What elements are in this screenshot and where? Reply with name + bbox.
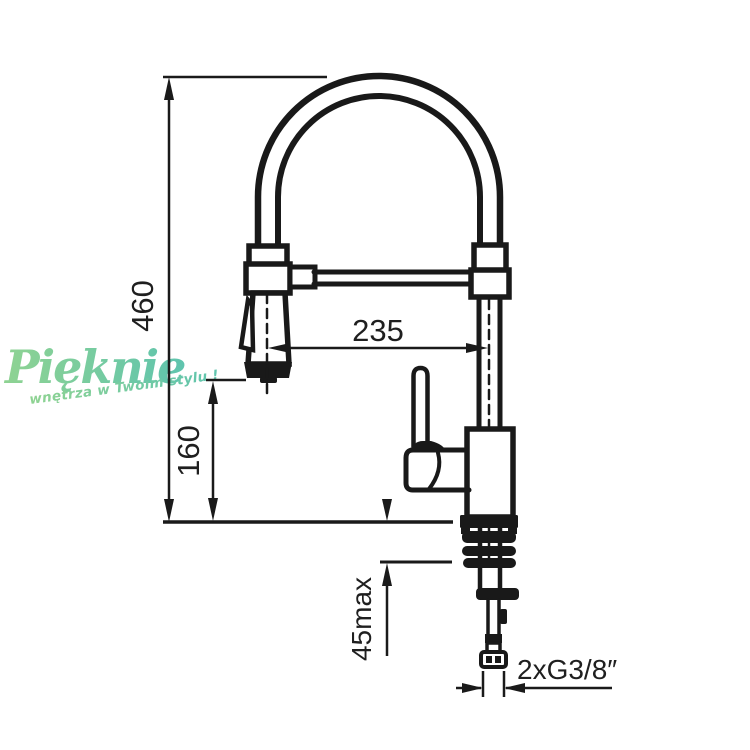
connector-port-right	[495, 656, 501, 663]
spray-head-clip	[241, 300, 253, 350]
dimension-235: 235	[268, 313, 488, 353]
watermark-logo: Pięknie wnętrza w Twoim stylu !	[3, 340, 220, 408]
supply-tube-tab	[500, 609, 507, 624]
hose-arc-inner	[278, 96, 480, 253]
faucet-dimension-drawing-page: Pięknie wnętrza w Twoim stylu !	[0, 0, 750, 750]
arrowhead-up	[208, 381, 218, 404]
arrowhead-right-point	[462, 683, 483, 693]
label-connection: 2xG3/8″	[517, 654, 617, 685]
label-460: 460	[125, 280, 160, 332]
shank-ring-2	[462, 546, 516, 556]
cartridge-housing	[406, 450, 441, 490]
technical-drawing: Pięknie wnętrza w Twoim stylu !	[0, 0, 750, 750]
arrowhead-up	[164, 77, 174, 100]
shank-ring-1	[462, 531, 516, 543]
arrowhead-down	[164, 499, 174, 522]
label-235: 235	[352, 313, 404, 348]
shank-ring-3	[463, 558, 516, 568]
dimension-annotations: 460 160 235 45max	[125, 77, 617, 697]
column-collar-lower	[471, 270, 509, 297]
faucet-body	[467, 429, 513, 517]
faucet-outline	[241, 76, 519, 667]
handle-lever	[414, 368, 428, 447]
hose-arc-outer	[258, 76, 500, 253]
base-flange	[460, 515, 518, 528]
connector-port-left	[486, 656, 492, 663]
hose-end-connector	[481, 652, 506, 667]
arrowhead-down	[208, 498, 218, 521]
spray-head-tip	[260, 377, 277, 383]
label-45max: 45max	[346, 577, 377, 661]
label-160: 160	[171, 425, 206, 477]
arrowhead-down	[382, 499, 392, 521]
holder-arm-socket	[290, 267, 315, 287]
mounting-nut	[476, 588, 519, 600]
dimension-160: 160	[171, 380, 246, 521]
spray-holder	[246, 264, 290, 293]
